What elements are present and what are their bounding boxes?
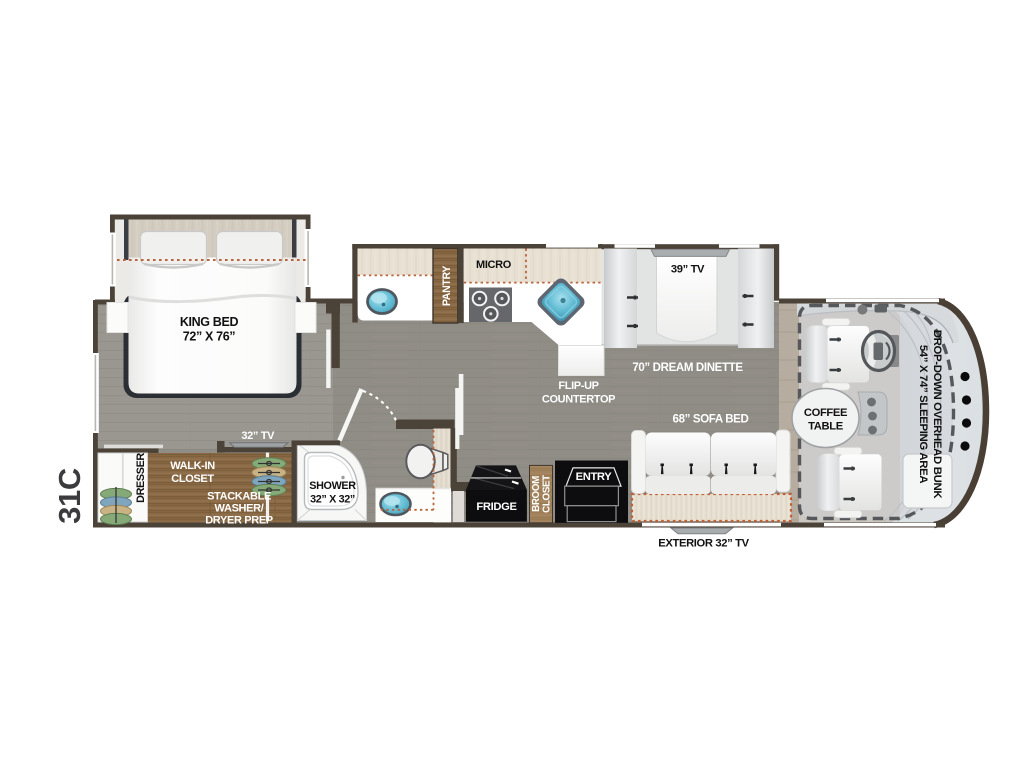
svg-text:COFFEE: COFFEE <box>804 407 848 419</box>
svg-text:PANTRY: PANTRY <box>441 266 453 307</box>
svg-text:WALK-IN: WALK-IN <box>170 460 215 472</box>
svg-text:FLIP-UP: FLIP-UP <box>558 380 598 392</box>
svg-text:DROP-DOWN OVERHEAD BUNK: DROP-DOWN OVERHEAD BUNK <box>931 330 943 500</box>
svg-text:CLOSET: CLOSET <box>542 475 553 513</box>
svg-text:CLOSET: CLOSET <box>171 473 214 485</box>
svg-text:DRYER PREP: DRYER PREP <box>205 515 273 527</box>
svg-text:SHOWER: SHOWER <box>309 480 356 492</box>
svg-text:BROOM: BROOM <box>531 476 542 512</box>
svg-text:WASHER/: WASHER/ <box>215 503 264 515</box>
svg-text:54” X 74” SLEEPING AREA: 54” X 74” SLEEPING AREA <box>917 345 929 484</box>
svg-text:39” TV: 39” TV <box>671 264 705 276</box>
svg-text:EXTERIOR 32” TV: EXTERIOR 32” TV <box>658 538 749 550</box>
svg-text:COUNTERTOP: COUNTERTOP <box>542 394 615 406</box>
svg-text:DRESSER: DRESSER <box>135 453 147 503</box>
svg-text:MICRO: MICRO <box>476 259 512 271</box>
svg-text:KING BED: KING BED <box>180 315 239 329</box>
svg-text:31C: 31C <box>52 468 87 524</box>
svg-text:72” X 76”: 72” X 76” <box>183 330 236 344</box>
svg-text:STACKABLE: STACKABLE <box>207 491 271 503</box>
svg-text:68” SOFA BED: 68” SOFA BED <box>673 414 749 426</box>
svg-text:32” TV: 32” TV <box>241 430 275 442</box>
svg-text:FRIDGE: FRIDGE <box>476 501 517 513</box>
svg-text:70” DREAM DINETTE: 70” DREAM DINETTE <box>632 362 743 374</box>
svg-text:TABLE: TABLE <box>808 421 844 433</box>
svg-text:32” X 32”: 32” X 32” <box>310 494 355 506</box>
svg-text:ENTRY: ENTRY <box>576 471 613 483</box>
